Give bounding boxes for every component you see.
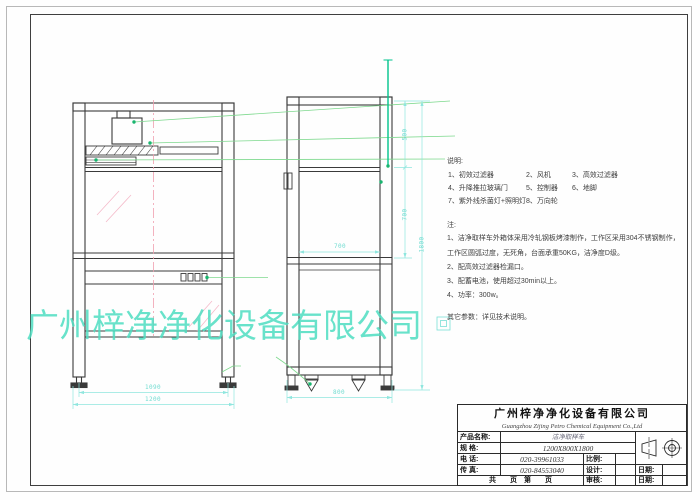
fax-value: 020-84553040 — [501, 465, 584, 476]
tel-label: 电 话: — [458, 454, 501, 465]
remark-line: 工作区圆弧过度，无死角，台面承重50KG，洁净度D级。 — [447, 248, 624, 258]
title-block: 广州梓净净化设备有限公司 Guangzhou Zijing Petro Chem… — [457, 404, 687, 486]
pages-label: 共 页 第 页 — [458, 476, 584, 486]
dim-front-inner-width: 1090 — [138, 384, 168, 391]
dim-height-total: 1800 — [419, 233, 426, 257]
filter-section — [86, 146, 218, 165]
dim-side-inner-width: 700 — [325, 243, 355, 250]
side-work-top — [287, 258, 392, 271]
check-value — [616, 476, 636, 486]
dim-side-depth: 800 — [324, 389, 354, 396]
check-label: 审核: — [584, 476, 616, 486]
side-bottom-member — [287, 367, 392, 375]
spec-label: 规 格: — [458, 443, 501, 454]
parts-row: 7、紫外线杀菌灯+照明灯 8、万向轮 — [447, 196, 689, 209]
dim-height-top: 500 — [402, 125, 409, 145]
scale-label: 比例: — [584, 454, 616, 465]
notes-heading: 说明: — [447, 156, 463, 166]
dim-height-mid: 700 — [402, 205, 409, 225]
part-item: 8、万向轮 — [526, 196, 558, 206]
part-item: 2、风机 — [526, 170, 551, 180]
company-watermark: 广州梓净净化设备有限公司 — [26, 299, 422, 347]
remark-line: 1、洁净取样车外箱体采用冷轧钢板烤漆制作，工作区采用304不锈钢制作， — [447, 233, 680, 243]
dimension-lines — [73, 101, 450, 409]
date2-value — [663, 476, 687, 486]
remark-line: 4、功率：300w。 — [447, 290, 503, 300]
fan-unit — [112, 111, 142, 144]
parts-row: 1、初效过滤器 2、风机 3、高效过滤器 — [447, 170, 689, 183]
drawing-sheet: 1090 1200 800 700 500 700 1800 说明: 1、初效过… — [0, 0, 700, 500]
company-cell: 广州梓净净化设备有限公司 Guangzhou Zijing Petro Chem… — [458, 405, 686, 432]
part-item: 1、初效过滤器 — [448, 170, 494, 180]
side-top-member — [287, 97, 392, 105]
notes-block: 说明: 1、初效过滤器 2、风机 3、高效过滤器 4、升降推拉玻璃门 5、控制器… — [447, 152, 689, 337]
projection-symbol-cell — [636, 432, 687, 465]
date-value — [663, 465, 687, 476]
fax-label: 传 真: — [458, 465, 501, 476]
tel-value: 020-39961033 — [501, 454, 584, 465]
remark-line: 2、配高效过滤器检漏口。 — [447, 262, 528, 272]
other-params-line: 其它参数：详见技术说明。 — [447, 312, 531, 322]
remark-line: 3、配蓄电池，使用超过30min以上。 — [447, 276, 561, 286]
date-label: 日期: — [636, 465, 663, 476]
company-name-en: Guangzhou Zijing Petro Chemical Equipmen… — [458, 422, 686, 431]
company-name-cn: 广州梓净净化设备有限公司 — [458, 405, 686, 422]
remark-heading: 注: — [447, 220, 456, 230]
spec-value: 1200X800X1800 — [501, 443, 636, 454]
parts-row: 4、升降推拉玻璃门 5、控制器 6、地脚 — [447, 183, 689, 196]
dim-front-outer-width: 1200 — [138, 396, 168, 403]
design-value — [616, 465, 636, 476]
date2-label: 日期: — [636, 476, 663, 486]
part-item: 4、升降推拉玻璃门 — [448, 183, 508, 193]
part-item: 6、地脚 — [572, 183, 597, 193]
scale-value — [616, 454, 636, 465]
part-item: 3、高效过滤器 — [572, 170, 618, 180]
product-name-label: 产品名称: — [458, 432, 501, 443]
part-item: 7、紫外线杀菌灯+照明灯 — [448, 196, 526, 206]
part-item: 5、控制器 — [526, 183, 558, 193]
projection-symbol-icon — [636, 432, 686, 464]
product-name-value: 洁净取样车 — [501, 432, 636, 443]
door-handle — [284, 173, 292, 189]
design-label: 设计: — [584, 465, 616, 476]
